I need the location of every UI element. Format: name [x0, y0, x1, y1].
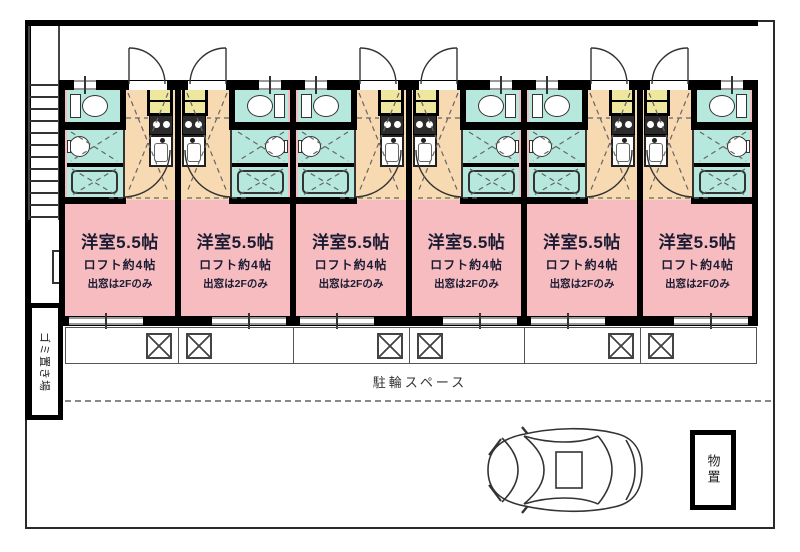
entry-tile: [612, 102, 632, 113]
toilet-south-wall: [65, 122, 126, 130]
sink-basin: [385, 143, 399, 162]
stove-burner: [384, 121, 391, 128]
toilet-tank: [736, 94, 747, 118]
entry-tile: [185, 102, 205, 113]
toilet-bowl: [478, 95, 504, 117]
room-size-label: 洋室5.5帖: [180, 232, 291, 253]
entry-tile: [612, 89, 632, 100]
party-wall: [175, 80, 181, 326]
toilet-bowl: [82, 95, 108, 117]
washer-pad-box: [417, 333, 443, 359]
party-wall: [290, 80, 296, 326]
stair-treads: [30, 84, 58, 222]
washroom-bath-wall: [693, 163, 750, 167]
corridor-partition: [585, 130, 587, 197]
toilet-bowl: [544, 95, 570, 117]
washbasin-icon: [694, 130, 750, 163]
unit-label: 洋室5.5帖ロフト約4帖出窓は2Fのみ: [411, 232, 522, 290]
washer-pad-box: [377, 333, 403, 359]
entrance-door-gap: [360, 81, 398, 90]
sink-basin: [649, 143, 663, 162]
washbasin-counter: [746, 140, 750, 153]
entry-tile: [381, 89, 401, 100]
stove-burner: [163, 121, 170, 128]
toilet-icon: [67, 90, 123, 122]
window-tick: [315, 76, 317, 94]
washbasin-counter: [67, 140, 71, 153]
toilet-south-wall: [296, 122, 357, 130]
car-illustration: [476, 424, 652, 516]
stove-burner: [426, 121, 433, 128]
sink-faucet: [652, 138, 657, 143]
washbasin-icon: [529, 130, 585, 163]
washbasin-counter: [284, 140, 288, 153]
loft-size-label: ロフト約4帖: [526, 259, 638, 272]
sink-faucet: [421, 138, 426, 143]
garbage-area: ゴミ置き場: [27, 303, 63, 420]
staircase: [28, 26, 60, 220]
sink-basin: [418, 143, 432, 162]
washbasin-icon: [463, 130, 519, 163]
room-size-label: 洋室5.5帖: [526, 232, 638, 253]
washer-pad-box: [146, 333, 172, 359]
loft-size-label: ロフト約4帖: [295, 259, 407, 272]
washbasin-bowl: [265, 136, 286, 157]
toilet-east-wall: [351, 90, 357, 130]
kitchen-sink-icon: [149, 135, 173, 167]
sink-faucet: [391, 138, 396, 143]
corridor-partition: [461, 130, 463, 197]
loft-size-label: ロフト約4帖: [64, 259, 176, 272]
unit-label: 洋室5.5帖ロフト約4帖出窓は2Fのみ: [64, 232, 176, 290]
stove-burner: [195, 121, 202, 128]
service-strip-divider: [293, 327, 294, 364]
party-wall: [59, 80, 65, 326]
toilet-icon: [463, 90, 519, 122]
stove-burner: [647, 121, 654, 128]
entrance-door-gap: [188, 81, 226, 90]
toilet-south-wall: [691, 122, 752, 130]
corridor-partition: [692, 130, 694, 197]
entry-tile: [416, 89, 436, 100]
washbasin-counter: [298, 140, 302, 153]
toilet-south-wall: [229, 122, 290, 130]
bay-window-note: 出窓は2Fのみ: [64, 278, 176, 290]
toilet-east-wall: [229, 90, 235, 130]
window-tick: [269, 76, 271, 94]
toilet-tank: [70, 94, 81, 118]
unit-label: 洋室5.5帖ロフト約4帖出窓は2Fのみ: [642, 232, 753, 290]
toilet-bowl: [313, 95, 339, 117]
entry-tile: [150, 89, 170, 100]
bike-parking-label: 駐輪スペース: [340, 372, 500, 391]
washroom-bath-wall: [462, 163, 519, 167]
loft-size-label: ロフト約4帖: [411, 259, 522, 272]
toilet-east-wall: [460, 90, 466, 130]
bay-window-note: 出窓は2Fのみ: [180, 278, 291, 290]
bathtub-icon: [468, 170, 515, 194]
corridor-partition: [354, 130, 356, 197]
service-strip-divider: [409, 327, 410, 364]
stove-icon: [149, 115, 173, 135]
washbasin-bowl: [727, 136, 748, 157]
sink-faucet: [190, 138, 195, 143]
washbasin-icon: [298, 130, 354, 163]
stove-icon: [644, 115, 668, 135]
toilet-icon: [529, 90, 585, 122]
entry-tile: [647, 89, 667, 100]
entrance-door-gap: [129, 81, 167, 90]
toilet-icon: [232, 90, 288, 122]
kitchen-sink-icon: [611, 135, 635, 167]
washroom-bath-wall: [298, 163, 355, 167]
party-wall: [521, 80, 527, 326]
toilet-south-wall: [527, 122, 588, 130]
washroom-bath-wall: [231, 163, 288, 167]
corridor-partition: [123, 130, 125, 197]
bathtub-icon: [533, 170, 580, 194]
toilet-tank: [505, 94, 516, 118]
parking-boundary-dashed-line: [65, 400, 771, 402]
bay-window-note: 出窓は2Fのみ: [295, 278, 407, 290]
entry-tile: [416, 102, 436, 113]
stove-burner: [185, 121, 192, 128]
bathtub-icon: [71, 170, 118, 194]
bay-window-note: 出窓は2Fのみ: [642, 278, 753, 290]
entry-tile: [647, 102, 667, 113]
bathtub-icon: [699, 170, 746, 194]
entrance-door-gap: [650, 81, 688, 90]
floorplan-canvas: ゴミ置き場 洋室5.5帖ロフト約4帖出窓は2Fのみ洋室5.5帖ロフト約4帖出窓は…: [0, 0, 800, 552]
room-size-label: 洋室5.5帖: [64, 232, 176, 253]
washbasin-icon: [67, 130, 123, 163]
unit-label: 洋室5.5帖ロフト約4帖出窓は2Fのみ: [295, 232, 407, 290]
toilet-icon: [298, 90, 354, 122]
washroom-bath-wall: [529, 163, 586, 167]
washer-pad-box: [186, 333, 212, 359]
kitchen-sink-icon: [182, 135, 206, 167]
storage-shed: 物置: [690, 430, 736, 510]
washbasin-bowl: [300, 136, 321, 157]
stove-burner: [625, 121, 632, 128]
washroom-bath-wall: [67, 163, 124, 167]
sink-faucet: [160, 138, 165, 143]
stove-burner: [657, 121, 664, 128]
washer-pad-box: [608, 333, 634, 359]
window-tick: [84, 76, 86, 94]
washbasin-bowl: [531, 136, 552, 157]
service-strip-divider: [524, 327, 525, 364]
toilet-icon: [694, 90, 750, 122]
washer-pad-box: [648, 333, 674, 359]
washbasin-icon: [232, 130, 288, 163]
washbasin-counter: [515, 140, 519, 153]
north-site-wall: [25, 20, 758, 26]
toilet-tank: [301, 94, 312, 118]
party-wall: [406, 80, 412, 326]
bathtub-icon: [237, 170, 284, 194]
entry-tile: [150, 102, 170, 113]
sink-basin: [616, 143, 630, 162]
washbasin-bowl: [69, 136, 90, 157]
unit-label: 洋室5.5帖ロフト約4帖出窓は2Fのみ: [526, 232, 638, 290]
toilet-tank: [274, 94, 285, 118]
bathroom-south-wall: [691, 197, 752, 204]
bathtub-icon: [302, 170, 349, 194]
toilet-bowl: [247, 95, 273, 117]
stove-burner: [394, 121, 401, 128]
bay-window-note: 出窓は2Fのみ: [526, 278, 638, 290]
loft-size-label: ロフト約4帖: [180, 259, 291, 272]
washbasin-counter: [529, 140, 533, 153]
toilet-east-wall: [691, 90, 697, 130]
party-wall: [637, 80, 643, 326]
toilet-south-wall: [460, 122, 521, 130]
garbage-area-label: ゴミ置き場: [37, 332, 53, 392]
loft-size-label: ロフト約4帖: [642, 259, 753, 272]
stove-burner: [416, 121, 423, 128]
room-size-label: 洋室5.5帖: [411, 232, 522, 253]
stove-icon: [611, 115, 635, 135]
window-tick: [546, 76, 548, 94]
bathroom-south-wall: [527, 197, 588, 204]
service-strip-divider: [178, 327, 179, 364]
entrance-door-gap: [419, 81, 457, 90]
kitchen-sink-icon: [380, 135, 404, 167]
storage-shed-label: 物置: [704, 454, 723, 486]
corridor-partition: [230, 130, 232, 197]
bathroom-south-wall: [65, 197, 126, 204]
service-strip-divider: [640, 327, 641, 364]
washbasin-bowl: [496, 136, 517, 157]
entry-tile: [185, 89, 205, 100]
toilet-east-wall: [120, 90, 126, 130]
stove-burner: [153, 121, 160, 128]
stove-burner: [615, 121, 622, 128]
room-size-label: 洋室5.5帖: [295, 232, 407, 253]
sink-faucet: [622, 138, 627, 143]
toilet-tank: [532, 94, 543, 118]
entrance-door-gap: [591, 81, 629, 90]
unit-label: 洋室5.5帖ロフト約4帖出窓は2Fのみ: [180, 232, 291, 290]
room-size-label: 洋室5.5帖: [642, 232, 753, 253]
window-tick: [731, 76, 733, 94]
bay-window-note: 出窓は2Fのみ: [411, 278, 522, 290]
kitchen-sink-icon: [644, 135, 668, 167]
bathroom-south-wall: [460, 197, 521, 204]
party-wall: [752, 80, 758, 326]
bathroom-south-wall: [296, 197, 357, 204]
toilet-bowl: [709, 95, 735, 117]
bathroom-south-wall: [229, 197, 290, 204]
stove-icon: [413, 115, 437, 135]
sink-basin: [154, 143, 168, 162]
stove-icon: [380, 115, 404, 135]
window-tick: [500, 76, 502, 94]
stove-icon: [182, 115, 206, 135]
sink-basin: [187, 143, 201, 162]
toilet-east-wall: [582, 90, 588, 130]
kitchen-sink-icon: [413, 135, 437, 167]
entry-tile: [381, 102, 401, 113]
